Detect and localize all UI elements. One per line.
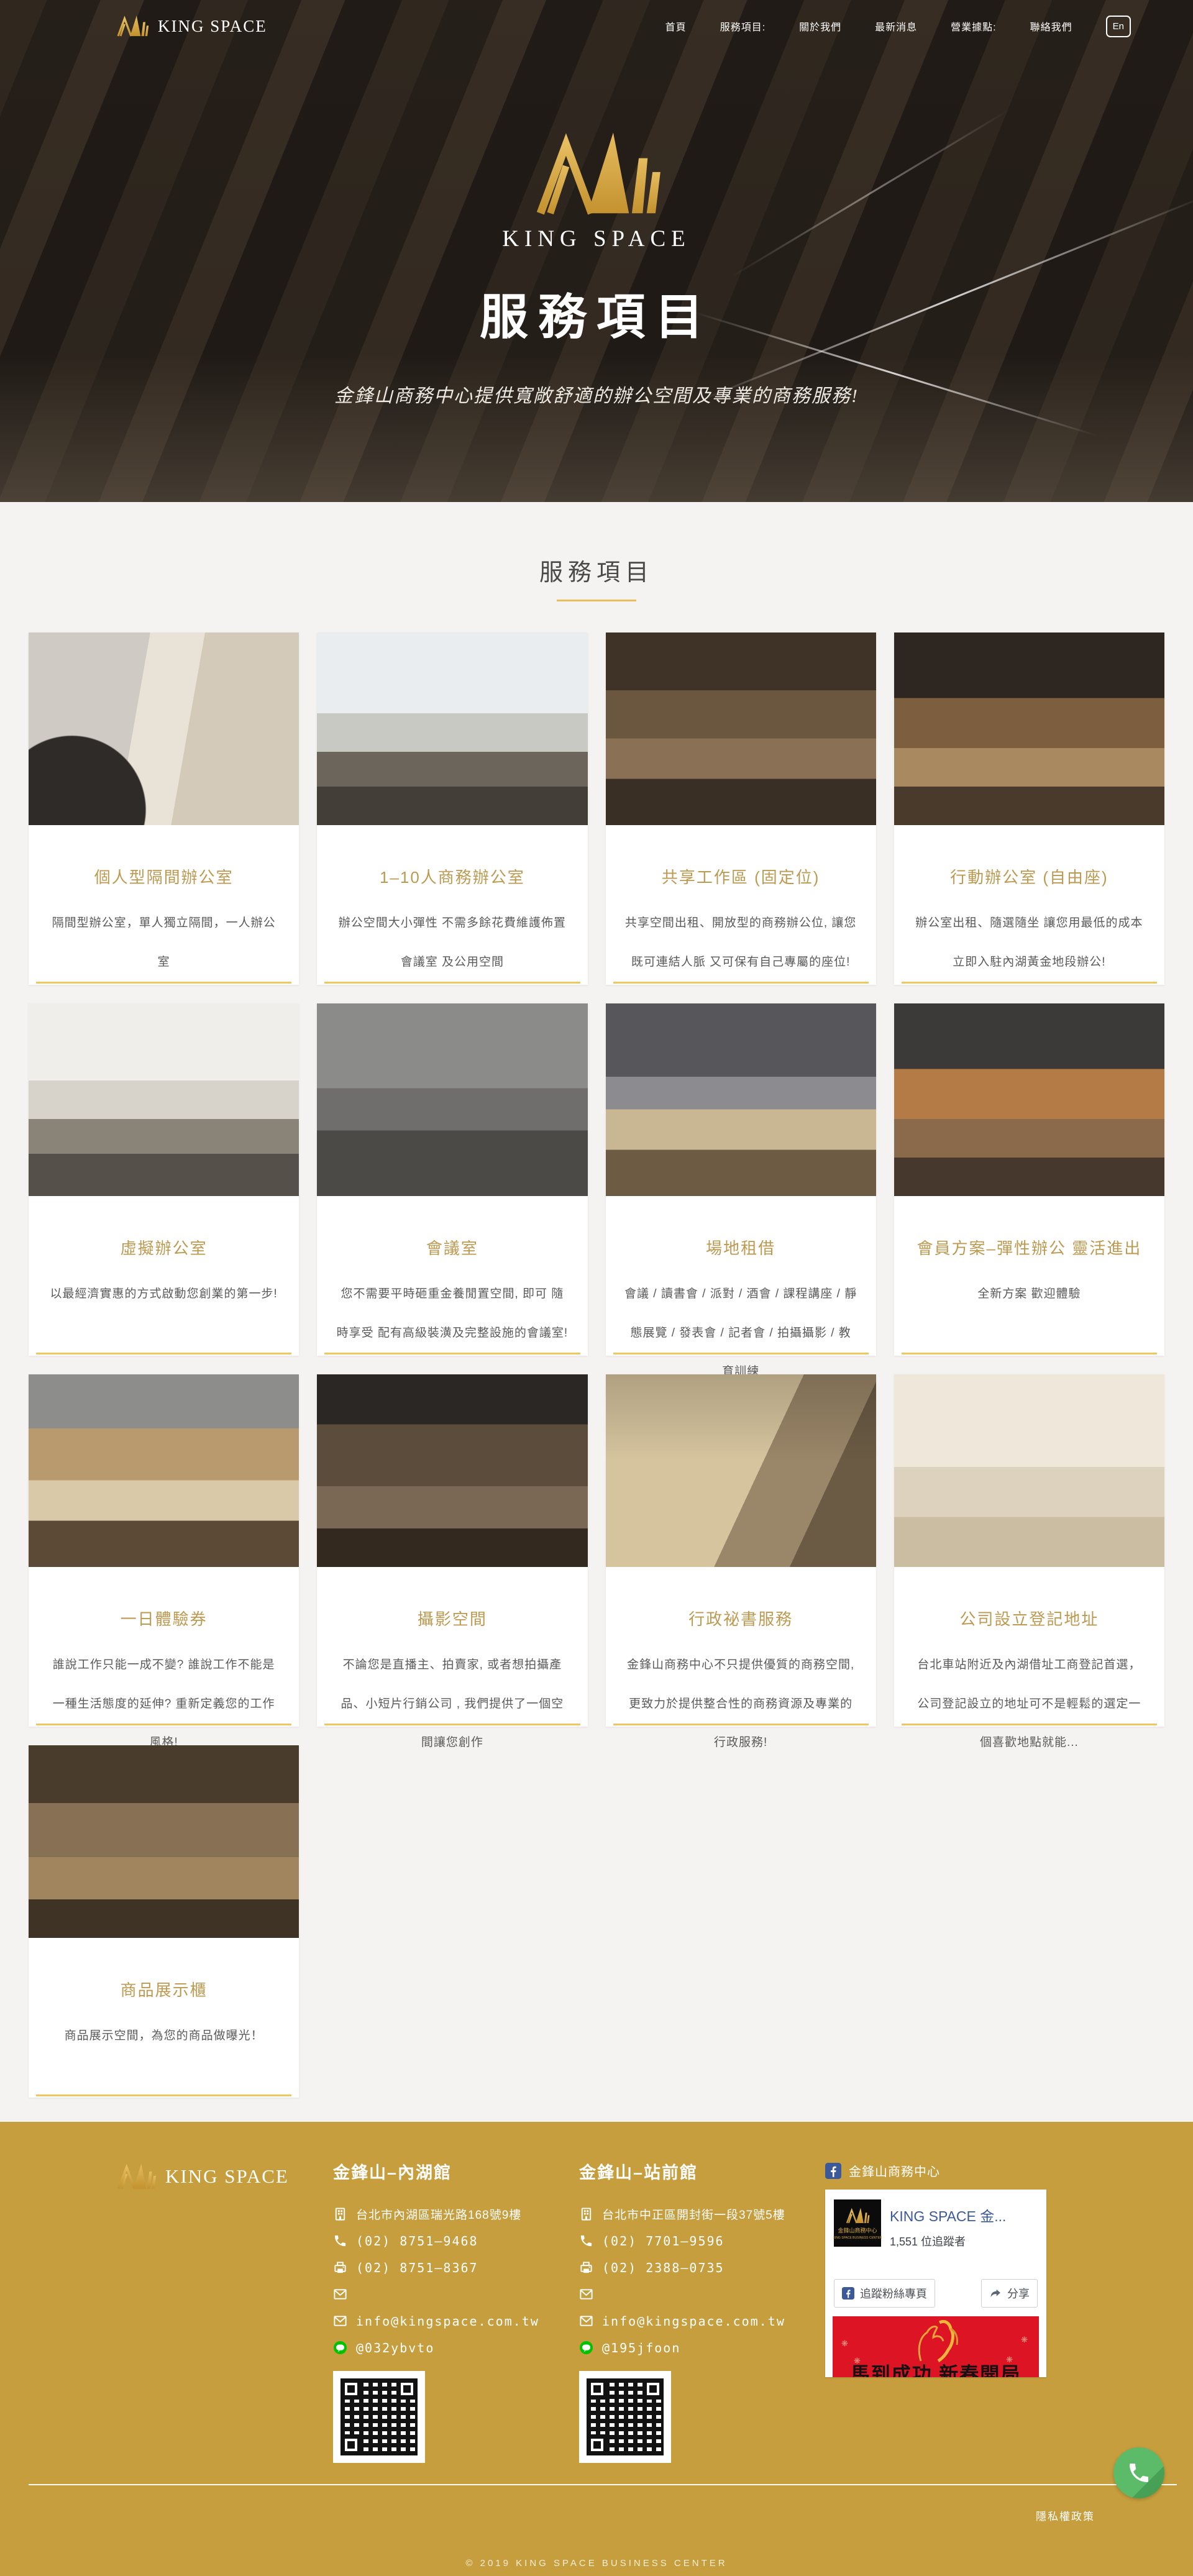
banner-text: 馬到成功 新春開局: [833, 2359, 1039, 2377]
line-id-link[interactable]: @195jfoon: [602, 2341, 680, 2355]
service-card-membership-plan[interactable]: 會員方案–彈性辦公 靈活進出 全新方案 歡迎體驗: [894, 1003, 1164, 1356]
hero-brand-name: KING SPACE: [0, 226, 1193, 252]
phone-fab[interactable]: [1113, 2447, 1164, 2498]
line-row: @195jfoon: [579, 2334, 825, 2361]
envelope-icon: [333, 2287, 347, 2301]
envelope-icon: [333, 2314, 347, 2328]
facebook-page-header: 金鋒山商務中心: [825, 2162, 1046, 2180]
footer: KING SPACE 金鋒山–內湖館 台北市內湖區瑞光路168號9樓 (02) …: [0, 2122, 1193, 2576]
hero-subtitle: 金鋒山商務中心提供寬敞舒適的辦公空間及專業的商務服務!: [0, 380, 1193, 408]
follow-page-button[interactable]: 追蹤粉絲專頁: [834, 2279, 935, 2308]
service-card-title: 虛擬辦公室: [45, 1236, 283, 1259]
service-card-photo: [317, 1374, 587, 1567]
nav-item-services[interactable]: 服務項目:: [720, 19, 766, 34]
share-button[interactable]: 分享: [981, 2279, 1038, 2308]
footer-divider: [29, 2484, 1177, 2485]
kingspace-logo-icon: [116, 14, 149, 39]
service-card-title: 公司設立登記地址: [910, 1607, 1148, 1630]
footer-brand: KING SPACE: [116, 2162, 333, 2191]
nav-item-news[interactable]: 最新消息: [875, 19, 917, 34]
service-card-photo: [29, 1374, 299, 1567]
service-card-company-registration[interactable]: 公司設立登記地址 台北車站附近及內湖借址工商登記首選，公司登記設立的地址可不是輕…: [894, 1374, 1164, 1727]
fax-row: (02) 8751–8367: [333, 2254, 579, 2281]
top-nav: KING SPACE 首頁 服務項目: 關於我們 最新消息 營業據點: 聯絡我們…: [0, 0, 1193, 52]
nav-item-about[interactable]: 關於我們: [799, 19, 841, 34]
service-card-mobile-office[interactable]: 行動辦公室 (自由座) 辦公室出租、隨選隨坐 讓您用最低的成本 立即入駐內湖黃金…: [894, 633, 1164, 985]
services-section: 服務項目 個人型隔間辦公室 隔間型辦公室，單人獨立隔間，一人辦公室 1–10人商…: [0, 502, 1193, 2122]
service-card-title: 商品展示櫃: [45, 1978, 283, 2001]
address-text: 台北市內湖區瑞光路168號9樓: [356, 2206, 521, 2222]
service-card-photo: [894, 1003, 1164, 1196]
service-card-secretary-service[interactable]: 行政祕書服務 金鋒山商務中心不只提供優質的商務空間, 更致力於提供整合性的商務資…: [606, 1374, 876, 1727]
kingspace-logo-icon: [116, 2162, 157, 2191]
service-card-photo: [606, 1003, 876, 1196]
language-button[interactable]: En: [1106, 16, 1131, 37]
facebook-widget-buttons: 追蹤粉絲專頁 分享: [825, 2279, 1046, 2308]
service-card-desc: 共享空間出租、開放型的商務辦公位, 讓您既可連結人脈 又可保有自己專屬的座位!: [624, 904, 857, 982]
service-card-virtual-office[interactable]: 虛擬辦公室 以最經濟實惠的方式啟動您創業的第一步!: [29, 1003, 299, 1356]
facebook-page-title-link[interactable]: 金鋒山商務中心: [849, 2162, 940, 2180]
fax-row: (02) 2388–0735: [579, 2254, 825, 2281]
location-name: 金鋒山–內湖館: [333, 2159, 579, 2183]
address-row: 台北市內湖區瑞光路168號9樓: [333, 2201, 579, 2227]
service-card-title: 1–10人商務辦公室: [333, 865, 571, 888]
privacy-policy-link[interactable]: 隱私權政策: [29, 2508, 1095, 2523]
service-card-desc: 金鋒山商務中心不只提供優質的商務空間, 更致力於提供整合性的商務資源及專業的行政…: [624, 1646, 857, 1763]
email-row: info@kingspace.com.tw: [579, 2308, 825, 2334]
service-card-title: 共享工作區 (固定位): [622, 865, 860, 888]
service-card-day-pass[interactable]: 一日體驗券 誰說工作只能一成不變? 誰說工作不能是一種生活態度的延伸? 重新定義…: [29, 1374, 299, 1727]
facebook-post-image[interactable]: ❋ ❋ ❋ ❋ 馬到成功 新春開局: [833, 2316, 1039, 2377]
footer-brand-column: KING SPACE: [116, 2147, 333, 2463]
facebook-icon: [842, 2287, 854, 2300]
phone-row: (02) 7701–9596: [579, 2227, 825, 2254]
phone-number: (02) 8751–9468: [356, 2234, 478, 2249]
line-icon: [333, 2341, 347, 2355]
service-card-title: 攝影空間: [333, 1607, 571, 1630]
copyright-text: © 2019 KING SPACE BUSINESS CENTER: [29, 2558, 1164, 2569]
facebook-widget-top: 金鋒山商務中心 KING SPACE BUSINESS CENTER KING …: [825, 2190, 1046, 2249]
envelope-icon: [579, 2287, 593, 2301]
service-card-desc: 全新方案 歡迎體驗: [913, 1275, 1146, 1314]
service-card-product-showcase[interactable]: 商品展示櫃 商品展示空間，為您的商品做曝光！: [29, 1745, 299, 2098]
service-card-meeting-room[interactable]: 會議室 您不需要平時砸重金養閒置空間, 即可 隨時享受 配有高級裝潢及完整設施的…: [317, 1003, 587, 1356]
service-card-photo-studio[interactable]: 攝影空間 不論您是直播主、拍賣家, 或者想拍攝產品、小短片行銷公司 , 我們提供…: [317, 1374, 587, 1727]
service-card-photo: [29, 1003, 299, 1196]
page-title: 服務項目: [0, 278, 1193, 348]
line-icon: [579, 2341, 593, 2355]
nav-item-home[interactable]: 首頁: [665, 19, 687, 34]
email-link[interactable]: info@kingspace.com.tw: [602, 2314, 785, 2329]
service-card-desc: 商品展示空間，為您的商品做曝光！: [47, 2017, 280, 2056]
service-card-desc: 不論您是直播主、拍賣家, 或者想拍攝產品、小短片行銷公司 , 我們提供了一個空間…: [336, 1646, 569, 1763]
service-card-title: 會員方案–彈性辦公 靈活進出: [910, 1236, 1148, 1259]
service-card-title: 個人型隔間辦公室: [45, 865, 283, 888]
nav-item-contact[interactable]: 聯絡我們: [1030, 19, 1072, 34]
mail-icon-row: [579, 2281, 825, 2308]
service-card-photo: [29, 633, 299, 825]
phone-number: (02) 7701–9596: [602, 2234, 724, 2249]
facebook-followers-count: 1,551 位追蹤者: [890, 2233, 1006, 2249]
services-grid: 個人型隔間辦公室 隔間型辦公室，單人獨立隔間，一人辦公室 1–10人商務辦公室 …: [29, 633, 1164, 2098]
service-card-venue-rental[interactable]: 場地租借 會議 / 讀書會 / 派對 / 酒會 / 課程講座 / 靜態展覽 / …: [606, 1003, 876, 1356]
service-card-photo: [606, 1374, 876, 1567]
service-card-photo: [894, 633, 1164, 825]
hero-logo-icon: [0, 128, 1193, 223]
service-card-desc: 台北車站附近及內湖借址工商登記首選，公司登記設立的地址可不是輕鬆的選定一個喜歡地…: [913, 1646, 1146, 1763]
email-row: info@kingspace.com.tw: [333, 2308, 579, 2334]
service-card-photo: [317, 1003, 587, 1196]
service-card-desc: 隔間型辦公室，單人獨立隔間，一人辦公室: [47, 904, 280, 982]
footer-location-neihu: 金鋒山–內湖館 台北市內湖區瑞光路168號9樓 (02) 8751–9468 (…: [333, 2147, 579, 2463]
footer-facebook-column: 金鋒山商務中心 金鋒山商務中心 KING SPACE BUSINESS CENT…: [825, 2147, 1046, 2463]
building-icon: [333, 2207, 347, 2221]
section-title-underline: [557, 600, 636, 601]
envelope-icon: [579, 2314, 593, 2328]
facebook-page-avatar[interactable]: 金鋒山商務中心 KING SPACE BUSINESS CENTER: [834, 2199, 881, 2247]
email-link[interactable]: info@kingspace.com.tw: [356, 2314, 539, 2329]
qr-code-station: [579, 2371, 671, 2463]
address-text: 台北市中正區開封街一段37號5樓: [602, 2206, 785, 2222]
phone-icon: [1127, 2460, 1151, 2485]
service-card-title: 行動辦公室 (自由座): [910, 865, 1148, 888]
service-card-title: 行政祕書服務: [622, 1607, 860, 1630]
fax-number: (02) 8751–8367: [356, 2260, 478, 2275]
phone-row: (02) 8751–9468: [333, 2227, 579, 2254]
nav-item-locations[interactable]: 營業據點:: [951, 19, 996, 34]
fax-icon: [579, 2260, 593, 2275]
service-card-title: 會議室: [333, 1236, 571, 1259]
qr-code-neihu: [333, 2371, 425, 2463]
service-card-desc: 辦公室出租、隨選隨坐 讓您用最低的成本 立即入駐內湖黃金地段辦公!: [913, 904, 1146, 982]
location-name: 金鋒山–站前館: [579, 2159, 825, 2183]
phone-icon: [333, 2234, 347, 2248]
nav-brand-name: KING SPACE: [158, 17, 267, 36]
building-icon: [579, 2207, 593, 2221]
section-title: 服務項目: [0, 553, 1193, 587]
footer-columns: KING SPACE 金鋒山–內湖館 台北市內湖區瑞光路168號9樓 (02) …: [29, 2147, 1164, 2463]
share-icon: [989, 2287, 1002, 2300]
fax-icon: [333, 2260, 347, 2275]
fax-number: (02) 2388–0735: [602, 2260, 724, 2275]
service-card-title: 一日體驗券: [45, 1607, 283, 1630]
facebook-page-name[interactable]: KING SPACE 金...: [890, 2204, 1006, 2226]
line-row: @032ybvto: [333, 2334, 579, 2361]
facebook-widget: 金鋒山商務中心 KING SPACE BUSINESS CENTER KING …: [825, 2190, 1046, 2377]
nav-brand[interactable]: KING SPACE: [116, 14, 267, 39]
kingspace-logo-icon: [845, 2207, 870, 2224]
service-card-desc: 以最經濟實惠的方式啟動您創業的第一步!: [47, 1275, 280, 1314]
hero-content: KING SPACE 服務項目 金鋒山商務中心提供寬敞舒適的辦公空間及專業的商務…: [0, 128, 1193, 408]
service-card-private-office[interactable]: 個人型隔間辦公室 隔間型辦公室，單人獨立隔間，一人辦公室: [29, 633, 299, 985]
footer-brand-name: KING SPACE: [165, 2165, 289, 2188]
service-card-photo: [894, 1374, 1164, 1567]
line-id-link[interactable]: @032ybvto: [356, 2341, 434, 2355]
service-card-business-office[interactable]: 1–10人商務辦公室 辦公空間大小彈性 不需多餘花費維護佈置會議室 及公用空間: [317, 633, 587, 985]
phone-icon: [579, 2234, 593, 2248]
service-card-photo: [29, 1745, 299, 1938]
service-card-photo: [317, 633, 587, 825]
mail-icon-row: [333, 2281, 579, 2308]
facebook-icon: [825, 2163, 841, 2179]
service-card-desc: 您不需要平時砸重金養閒置空間, 即可 隨時享受 配有高級裝潢及完整設施的會議室!: [336, 1275, 569, 1353]
service-card-photo: [606, 633, 876, 825]
hero-section: KING SPACE 首頁 服務項目: 關於我們 最新消息 營業據點: 聯絡我們…: [0, 0, 1193, 502]
service-card-coworking-fixed[interactable]: 共享工作區 (固定位) 共享空間出租、開放型的商務辦公位, 讓您既可連結人脈 又…: [606, 633, 876, 985]
address-row: 台北市中正區開封街一段37號5樓: [579, 2201, 825, 2227]
nav-menu: 首頁 服務項目: 關於我們 最新消息 營業據點: 聯絡我們 En: [665, 16, 1131, 37]
footer-location-station: 金鋒山–站前館 台北市中正區開封街一段37號5樓 (02) 7701–9596 …: [579, 2147, 825, 2463]
service-card-desc: 辦公空間大小彈性 不需多餘花費維護佈置會議室 及公用空間: [336, 904, 569, 982]
service-card-title: 場地租借: [622, 1236, 860, 1259]
